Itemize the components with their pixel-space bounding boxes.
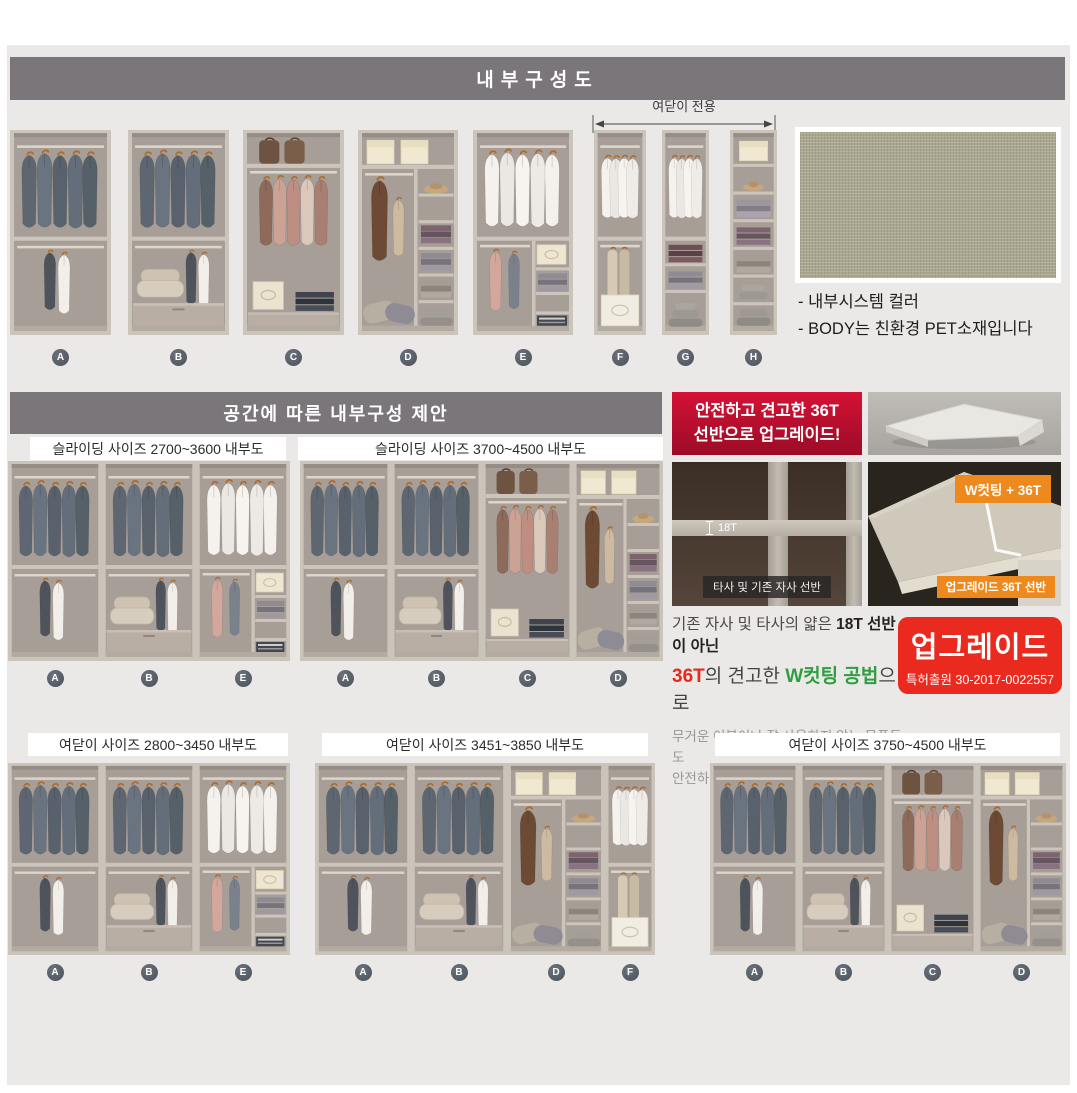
wardrobe-figure-hinged-large: ABCD bbox=[710, 763, 1066, 981]
unit-letter-badge-a: A bbox=[52, 349, 69, 366]
wardrobe-unit-b bbox=[799, 763, 888, 955]
top-unit-c: C bbox=[243, 130, 344, 366]
layout-label-hinged-2800-3450: 여닫이 사이즈 2800~3450 내부도 bbox=[28, 733, 288, 756]
wardrobe-unit-d bbox=[507, 763, 605, 955]
unit-letter-badge-e: E bbox=[235, 670, 252, 687]
wardrobe-unit-e bbox=[473, 130, 573, 335]
bracket-shape bbox=[868, 392, 1061, 455]
wardrobe-unit-c bbox=[482, 461, 573, 661]
wardrobe-unit-d bbox=[358, 130, 458, 335]
top-unit-g: G bbox=[662, 130, 709, 366]
wardrobe-unit-b bbox=[411, 763, 507, 955]
wardrobe-figure-hinged-small: ABE bbox=[8, 763, 290, 981]
unit-letter-badge-e: E bbox=[515, 349, 532, 366]
thin-shelf bbox=[672, 520, 862, 536]
measure-label: 18T bbox=[718, 522, 737, 534]
desc-line2: 36T의 견고한 W컷팅 공법으로 bbox=[672, 661, 904, 715]
wardrobe-unit-b bbox=[391, 461, 482, 661]
top-unit-b: B bbox=[128, 130, 229, 366]
unit-letter-badge-b: B bbox=[428, 670, 445, 687]
unit-letter-badge-d: D bbox=[400, 349, 417, 366]
wardrobe-unit-f bbox=[594, 130, 646, 335]
wardrobe-unit-g bbox=[662, 130, 709, 335]
layout-label-hinged-3750-4500: 여닫이 사이즈 3750~4500 내부도 bbox=[715, 733, 1060, 756]
upgrade-banner: 안전하고 견고한 36T 선반으로 업그레이드! bbox=[672, 392, 862, 455]
product-detail-page: 내부구성도 여닫이 전용 ABCDEFGH - 내부시스템 컬러 - BODY는… bbox=[0, 0, 1077, 1093]
shelf-bracket-photo bbox=[868, 392, 1061, 455]
wardrobe-unit-a bbox=[8, 763, 102, 955]
banner-line2: 선반으로 업그레이드! bbox=[694, 424, 841, 448]
unit-letter-badge-f: F bbox=[612, 349, 629, 366]
patent-number: 특허출원 30-2017-0022557 bbox=[906, 669, 1054, 688]
top-unit-a: A bbox=[10, 130, 111, 366]
photo-18t-shelf: 18T 타사 및 기존 자사 선반 bbox=[672, 462, 862, 606]
wardrobe-unit-c bbox=[243, 130, 344, 335]
wardrobe-unit-h bbox=[730, 130, 777, 335]
top-unit-e: E bbox=[473, 130, 573, 366]
unit-letter-badge-d: D bbox=[610, 670, 627, 687]
layout-label-sliding-2700-3600: 슬라이딩 사이즈 2700~3600 내부도 bbox=[30, 437, 286, 460]
wardrobe-figure-sliding-large: ABCD bbox=[300, 461, 663, 687]
top-unit-f: F bbox=[594, 130, 646, 366]
unit-letter-badge-e: E bbox=[235, 964, 252, 981]
layout-label-sliding-3700-4500: 슬라이딩 사이즈 3700~4500 내부도 bbox=[298, 437, 663, 460]
top-unit-h: H bbox=[730, 130, 777, 366]
interior-color-swatch bbox=[795, 127, 1061, 283]
wardrobe-unit-b bbox=[128, 130, 229, 335]
unit-letter-badge-b: B bbox=[141, 670, 158, 687]
wardrobe-unit-a bbox=[10, 130, 111, 335]
unit-letter-badge-g: G bbox=[677, 349, 694, 366]
annotation-label: 여닫이 전용 bbox=[592, 96, 776, 115]
unit-letter-badge-d: D bbox=[1013, 964, 1030, 981]
unit-letter-badge-b: B bbox=[141, 964, 158, 981]
unit-letter-badge-b: B bbox=[170, 349, 187, 366]
wardrobe-unit-a bbox=[710, 763, 799, 955]
unit-letter-badge-b: B bbox=[451, 964, 468, 981]
note-pet-material: - BODY는 친환경 PET소재입니다 bbox=[798, 316, 1033, 343]
unit-letter-badge-a: A bbox=[47, 964, 64, 981]
top-unit-d: D bbox=[358, 130, 458, 366]
wardrobe-unit-e bbox=[196, 763, 290, 955]
unit-letter-badge-h: H bbox=[745, 349, 762, 366]
wardrobe-unit-a bbox=[300, 461, 391, 661]
desc-line1-normal: 기존 자사 및 타사의 얇은 bbox=[672, 616, 836, 633]
photo-caption-right: 업그레이드 36T 선반 bbox=[937, 576, 1055, 598]
wardrobe-unit-e bbox=[196, 461, 290, 661]
wardrobe-figure-sliding-small: ABE bbox=[8, 461, 290, 687]
hinged-door-only-annotation: 여닫이 전용 bbox=[592, 96, 776, 132]
unit-letter-badge-c: C bbox=[285, 349, 302, 366]
unit-letter-badge-f: F bbox=[622, 964, 639, 981]
wardrobe-unit-a bbox=[8, 461, 102, 661]
wardrobe-unit-b bbox=[102, 461, 196, 661]
desc-mid: 의 견고한 bbox=[705, 666, 785, 687]
unit-letter-badge-b: B bbox=[835, 964, 852, 981]
patent-box: 업그레이드 특허출원 30-2017-0022557 bbox=[898, 617, 1062, 694]
wardrobe-unit-d bbox=[977, 763, 1066, 955]
measure-tick-icon bbox=[706, 521, 713, 535]
desc-wcut: W컷팅 공법 bbox=[785, 666, 878, 687]
wardrobe-unit-f bbox=[605, 763, 655, 955]
desc-line1: 기존 자사 및 타사의 얇은 18T 선반이 아닌 bbox=[672, 612, 904, 656]
unit-letter-badge-d: D bbox=[548, 964, 565, 981]
photo-caption-left: 타사 및 기존 자사 선반 bbox=[703, 576, 831, 598]
wardrobe-unit-d bbox=[573, 461, 663, 661]
unit-letter-badge-a: A bbox=[337, 670, 354, 687]
wardrobe-unit-b bbox=[102, 763, 196, 955]
wardrobe-unit-c bbox=[888, 763, 977, 955]
layout-label-hinged-3451-3850: 여닫이 사이즈 3451~3850 내부도 bbox=[322, 733, 648, 756]
photo-36t-shelf: W컷팅 + 36T 업그레이드 36T 선반 bbox=[868, 462, 1061, 606]
patent-title: 업그레이드 bbox=[911, 624, 1049, 666]
fabric-texture bbox=[800, 132, 1056, 278]
wardrobe-figure-hinged-medium: ABDF bbox=[315, 763, 655, 981]
unit-letter-badge-c: C bbox=[519, 670, 536, 687]
unit-letter-badge-c: C bbox=[924, 964, 941, 981]
desc-36t: 36T bbox=[672, 666, 705, 687]
wardrobe-unit-a bbox=[315, 763, 411, 955]
unit-letter-badge-a: A bbox=[355, 964, 372, 981]
w-cut-badge: W컷팅 + 36T bbox=[955, 475, 1051, 503]
unit-letter-badge-a: A bbox=[746, 964, 763, 981]
section-header-interior-diagram: 내부구성도 bbox=[10, 57, 1065, 100]
swatch-notes: - 내부시스템 컬러 - BODY는 친환경 PET소재입니다 bbox=[798, 289, 1033, 343]
unit-letter-badge-a: A bbox=[47, 670, 64, 687]
thickness-measure: 18T bbox=[706, 521, 737, 535]
banner-line1: 안전하고 견고한 36T bbox=[695, 400, 839, 424]
section-header-layout-suggestion: 공간에 따른 내부구성 제안 bbox=[10, 392, 662, 434]
note-interior-color: - 내부시스템 컬러 bbox=[798, 289, 1033, 316]
